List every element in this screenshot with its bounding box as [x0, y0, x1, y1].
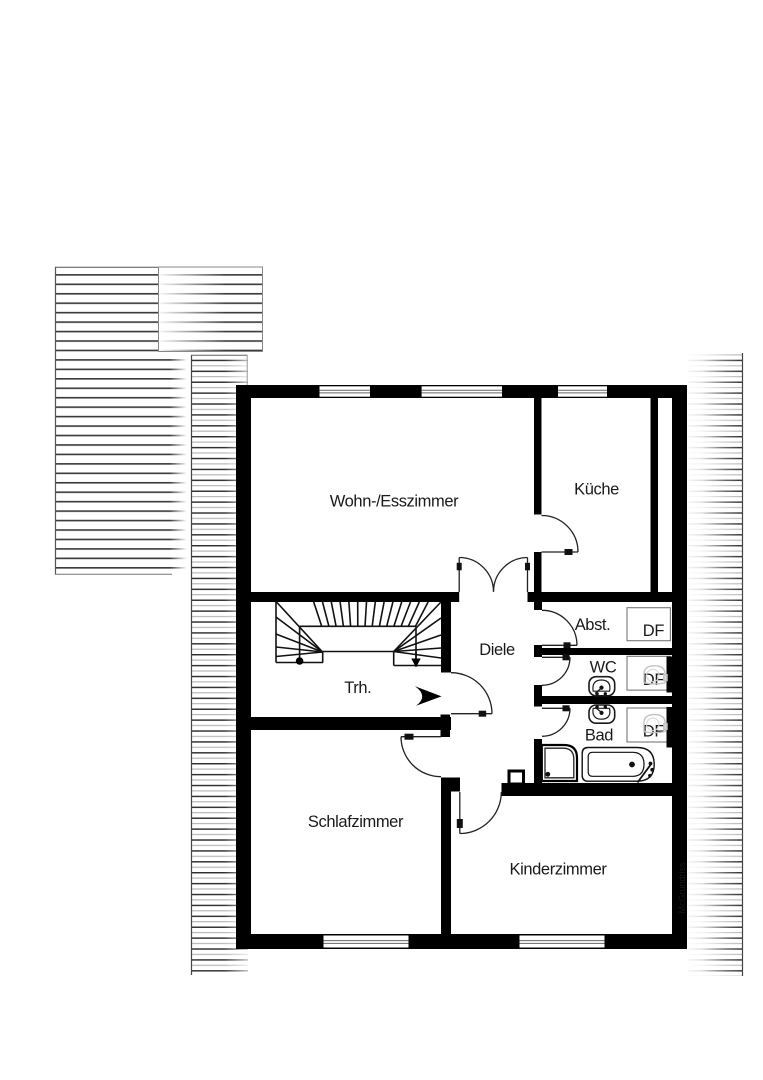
svg-text:Schlafzimmer: Schlafzimmer: [308, 813, 404, 831]
svg-text:Diele: Diele: [479, 641, 515, 659]
svg-text:Trh.: Trh.: [344, 679, 371, 697]
svg-text:Wohn-/Esszimmer: Wohn-/Esszimmer: [330, 493, 459, 511]
svg-text:DF: DF: [643, 671, 665, 689]
svg-text:WC: WC: [590, 659, 617, 677]
svg-text:Kinderzimmer: Kinderzimmer: [510, 861, 608, 879]
svg-text:Abst.: Abst.: [575, 616, 611, 634]
svg-text:Küche: Küche: [574, 481, 619, 499]
svg-text:McGrundriss: McGrundriss: [677, 862, 687, 914]
svg-text:DF: DF: [643, 622, 665, 640]
svg-text:Bad: Bad: [585, 727, 613, 745]
